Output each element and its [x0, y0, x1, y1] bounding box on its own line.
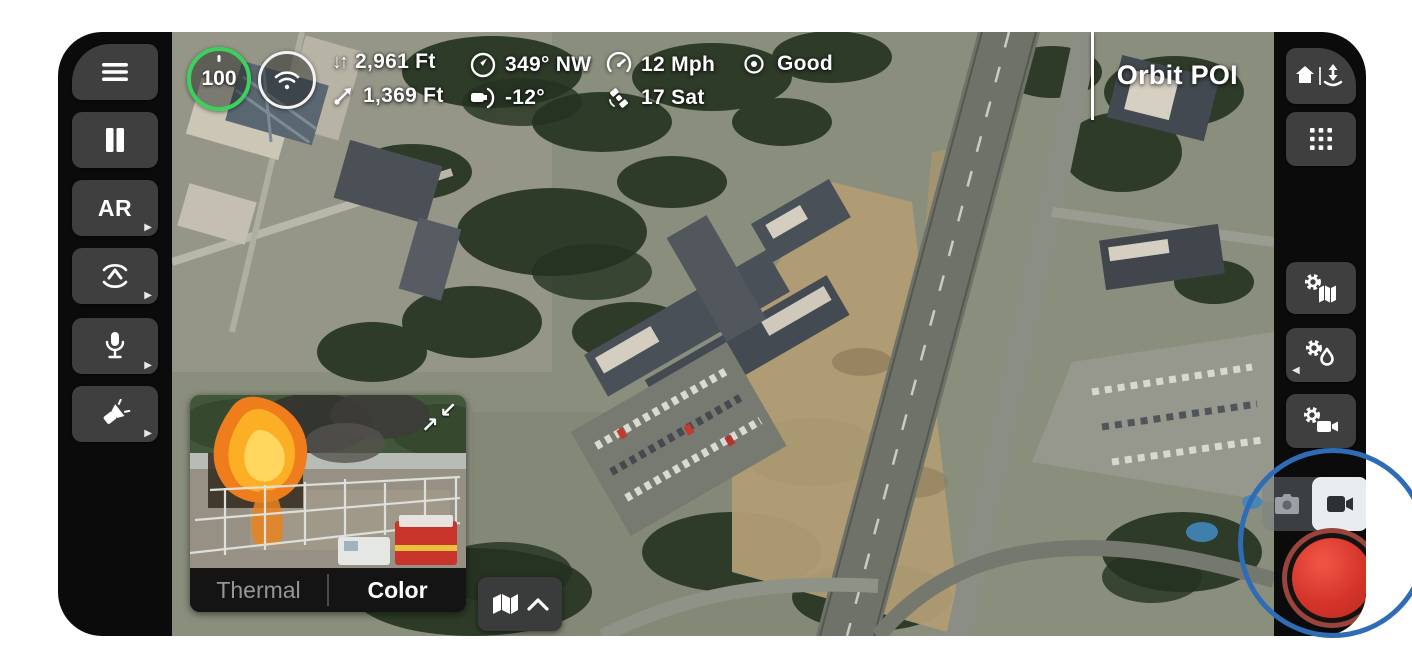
gimbal-readout: -12° — [470, 86, 545, 110]
spotlight-button[interactable]: ▶ — [72, 386, 158, 442]
distance-readout: 1,369 Ft — [332, 84, 444, 108]
battery-tick — [218, 55, 221, 62]
altitude-readout: ↓↑ 2,961 Ft — [332, 50, 436, 74]
gimbal-pitch-icon — [470, 86, 496, 110]
speed-gauge-icon — [606, 52, 632, 78]
distance-arrow-icon — [332, 85, 354, 107]
record-button-core — [1292, 538, 1366, 618]
grid-apps-icon — [1308, 126, 1334, 152]
swap-arrow-out-icon: ↗ — [421, 413, 439, 438]
altitude-arrows-icon: ↓↑ — [332, 51, 346, 74]
satellites-readout: 17 Sat — [606, 86, 705, 110]
mode-divider-line — [1091, 32, 1094, 120]
chevron-up-icon — [527, 598, 549, 611]
visibility-readout: Good — [740, 52, 833, 76]
visibility-value: Good — [777, 52, 833, 76]
thermal-settings-icon — [1303, 339, 1339, 371]
folded-map-icon — [491, 593, 519, 615]
signal-indicator[interactable] — [258, 51, 316, 109]
video-mode-segment[interactable] — [1312, 477, 1366, 531]
altitude-value: 2,961 Ft — [355, 50, 436, 74]
map-panel-toggle-button[interactable] — [478, 577, 562, 631]
speed-readout: 12 Mph — [606, 52, 715, 78]
pip-camera-view[interactable]: ↙ ↗ Thermal Color — [190, 395, 466, 612]
record-button[interactable] — [1282, 528, 1366, 628]
wifi-icon — [273, 68, 301, 92]
thermal-settings-button[interactable]: ◀ — [1286, 328, 1356, 382]
submenu-arrow-icon: ▶ — [144, 361, 152, 371]
app-window: 100 ↓↑ 2,961 Ft 1,369 Ft — [0, 0, 1412, 672]
microphone-button[interactable]: ▶ — [72, 318, 158, 374]
map-settings-button[interactable] — [1286, 262, 1356, 314]
photo-video-toggle[interactable] — [1262, 477, 1366, 531]
distance-value: 1,369 Ft — [363, 84, 444, 108]
ar-button[interactable]: AR ▶ — [72, 180, 158, 236]
heading-readout: 349° NW — [470, 52, 591, 78]
collapse-panel-arrow-icon: ◀ — [1292, 366, 1300, 376]
pip-feed-tabs: Thermal Color — [190, 568, 466, 612]
visibility-eye-icon — [740, 52, 768, 76]
heading-value: 349° NW — [505, 53, 591, 77]
map-settings-icon — [1303, 273, 1339, 303]
tab-thermal[interactable]: Thermal — [190, 568, 327, 612]
spotlight-icon — [99, 399, 131, 429]
return-home-launch-icon — [1295, 64, 1347, 88]
speed-value: 12 Mph — [641, 53, 715, 77]
pause-button[interactable] — [72, 112, 158, 168]
orbit-subject-button[interactable]: ▶ — [72, 248, 158, 304]
flight-mode-label: Orbit POI — [1098, 60, 1238, 91]
satellite-icon — [606, 86, 632, 110]
submenu-arrow-icon: ▶ — [144, 429, 152, 439]
battery-indicator[interactable]: 100 — [187, 47, 251, 111]
submenu-arrow-icon: ▶ — [144, 223, 152, 233]
gimbal-pitch-value: -12° — [505, 86, 545, 110]
video-settings-icon — [1302, 406, 1340, 436]
menu-icon — [100, 61, 130, 83]
menu-button[interactable] — [72, 44, 158, 100]
battery-value: 100 — [201, 67, 236, 91]
photo-camera-icon — [1274, 493, 1300, 515]
photo-mode-segment[interactable] — [1262, 477, 1312, 531]
swap-arrow-in-icon: ↙ — [439, 398, 457, 423]
video-camera-icon — [1326, 494, 1354, 514]
tab-color[interactable]: Color — [329, 568, 466, 612]
pause-icon — [103, 127, 127, 153]
orbit-subject-icon — [97, 261, 133, 291]
swap-view-button[interactable]: ↙ ↗ — [421, 400, 457, 436]
return-home-launch-button[interactable] — [1286, 48, 1356, 104]
device-frame: 100 ↓↑ 2,961 Ft 1,369 Ft — [58, 32, 1366, 636]
ar-label: AR — [98, 195, 132, 222]
compass-icon — [470, 52, 496, 78]
submenu-arrow-icon: ▶ — [144, 291, 152, 301]
microphone-icon — [100, 331, 130, 361]
grid-apps-button[interactable] — [1286, 112, 1356, 166]
video-settings-button[interactable] — [1286, 394, 1356, 448]
satellites-value: 17 Sat — [641, 86, 705, 110]
toolbar-group-separator — [58, 310, 172, 314]
